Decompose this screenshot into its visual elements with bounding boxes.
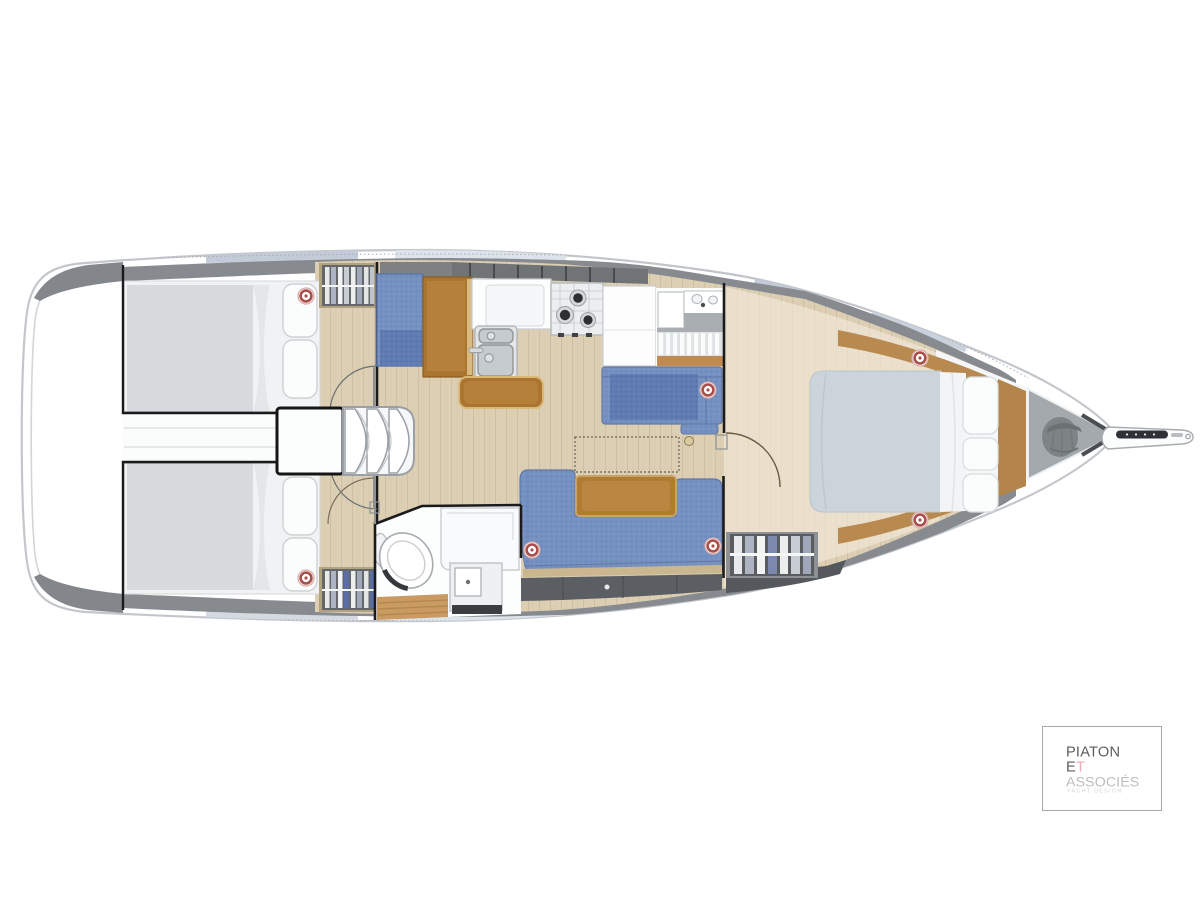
svg-text:PIATON: PIATON [1066, 745, 1120, 761]
svg-text:ET: ET [1066, 760, 1085, 776]
svg-text:YACHT DESIGN: YACHT DESIGN [1067, 789, 1123, 795]
